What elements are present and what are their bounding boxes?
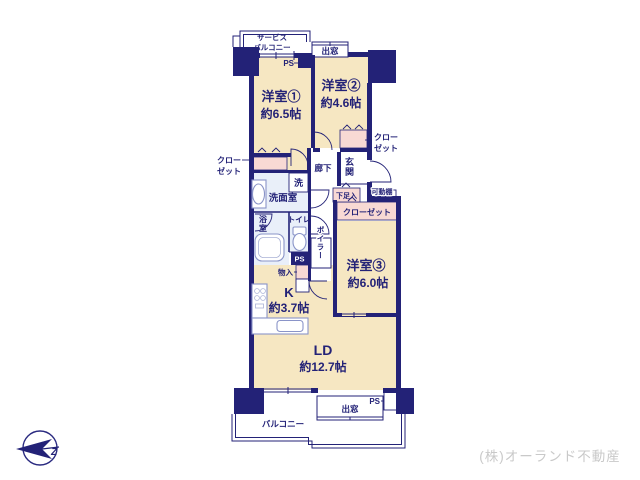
bay-window-bottom-label: 出窓 (341, 404, 359, 414)
entrance-label: 玄関 (344, 156, 354, 177)
wall-ld-y3-b (366, 313, 397, 317)
washroom-label: 洗面室 (269, 192, 298, 204)
wall-bottom-stub-mid (311, 388, 318, 393)
room-label-kitchen: K (284, 285, 294, 300)
ps-shaft-bottom (384, 392, 398, 410)
vanity-sink (253, 184, 265, 204)
washer-label: 洗 (294, 177, 303, 188)
room-size-youshitsu1: 約6.5帖 (261, 106, 302, 121)
wall-senmen-top (251, 170, 308, 173)
service-balcony-label-2: バルコニー (253, 43, 290, 52)
fridge-space-box (296, 279, 309, 292)
toilet-label: トイレ (288, 215, 311, 224)
room-floor-youshitsu1 (254, 57, 311, 153)
closet-youshitsu2 (340, 130, 367, 148)
ps-mid-label: PS (294, 255, 304, 264)
wall-top-stub-right (348, 52, 368, 57)
bathtub (255, 234, 284, 261)
monoire-label: 物入 (278, 267, 293, 277)
toilet-bowl (293, 234, 306, 251)
room-label-youshitsu1: 洋室① (261, 89, 300, 104)
door-entrance (370, 161, 391, 182)
floor-plan-page: サービス バルコニー 出窓 PS 洋室① 約6.5帖 洋室② 約4.6帖 クロー… (0, 0, 640, 480)
room-label-ld: LD (314, 342, 333, 358)
wall-ld-y3-a (333, 313, 342, 317)
wall-y3-west (333, 200, 337, 315)
closet1-label-2: ゼット (217, 166, 241, 176)
compass: Z (16, 431, 59, 465)
room-label-youshitsu3: 洋室③ (346, 258, 385, 273)
balcony-outline-outer (232, 414, 405, 448)
boiler-label: ボイラー (316, 225, 325, 260)
room-size-kitchen: 約3.7帖 (269, 300, 310, 315)
service-balcony-step (233, 36, 240, 47)
closet3-label: クローゼット (343, 207, 391, 217)
wall-east-lower (396, 202, 401, 390)
closet1-label-1: クロー (217, 155, 241, 165)
wall-genkan-divider (337, 152, 341, 186)
balcony-outline-inner (236, 414, 402, 445)
storage-monoire-box (296, 265, 310, 279)
ps-bottom-label: PS (369, 397, 380, 406)
wall-y2-bottom-b (340, 148, 370, 152)
wall-west (249, 55, 254, 392)
wall-top-stub-mid (294, 53, 312, 58)
column-bottom-right (396, 388, 414, 414)
closet-youshitsu1 (253, 157, 287, 170)
agency-credit: (株)オーランド不動産 (479, 449, 621, 464)
wall-jut (367, 196, 401, 202)
wall-bottom-stub-right (383, 388, 397, 393)
wall-y1-bottom (251, 153, 291, 157)
wall-corridor-west (308, 173, 311, 281)
floor-plan-drawing: サービス バルコニー 出窓 PS 洋室① 約6.5帖 洋室② 約4.6帖 クロー… (0, 0, 640, 480)
hallway-label: 廊下 (314, 163, 332, 173)
bay-window-top-label: 出窓 (321, 46, 339, 56)
closet2-label-1: クロー (374, 132, 398, 142)
column-top-right (368, 50, 396, 83)
balcony-label: バルコニー (262, 419, 304, 429)
movable-shelf-label: 可動棚 (372, 187, 393, 196)
room-size-ld: 約12.7帖 (299, 359, 346, 374)
room-size-youshitsu2: 約4.6帖 (321, 95, 362, 110)
wall-bottom-stub-left (251, 388, 264, 393)
shoe-cabinet-label: 下足入 (336, 192, 357, 200)
ps-top-label: PS (283, 59, 294, 68)
ps-shaft-top (298, 57, 311, 68)
service-balcony-label-1: サービス (257, 32, 287, 42)
room-size-youshitsu3: 約6.0帖 (348, 275, 389, 290)
room-label-youshitsu2: 洋室② (321, 78, 360, 93)
door-senmenshitsu (311, 190, 329, 208)
compass-north-label: Z (50, 447, 58, 458)
bathroom-label: 浴室 (258, 214, 268, 233)
closet2-label-2: ゼット (374, 143, 398, 153)
kitchen-sink (277, 321, 303, 332)
